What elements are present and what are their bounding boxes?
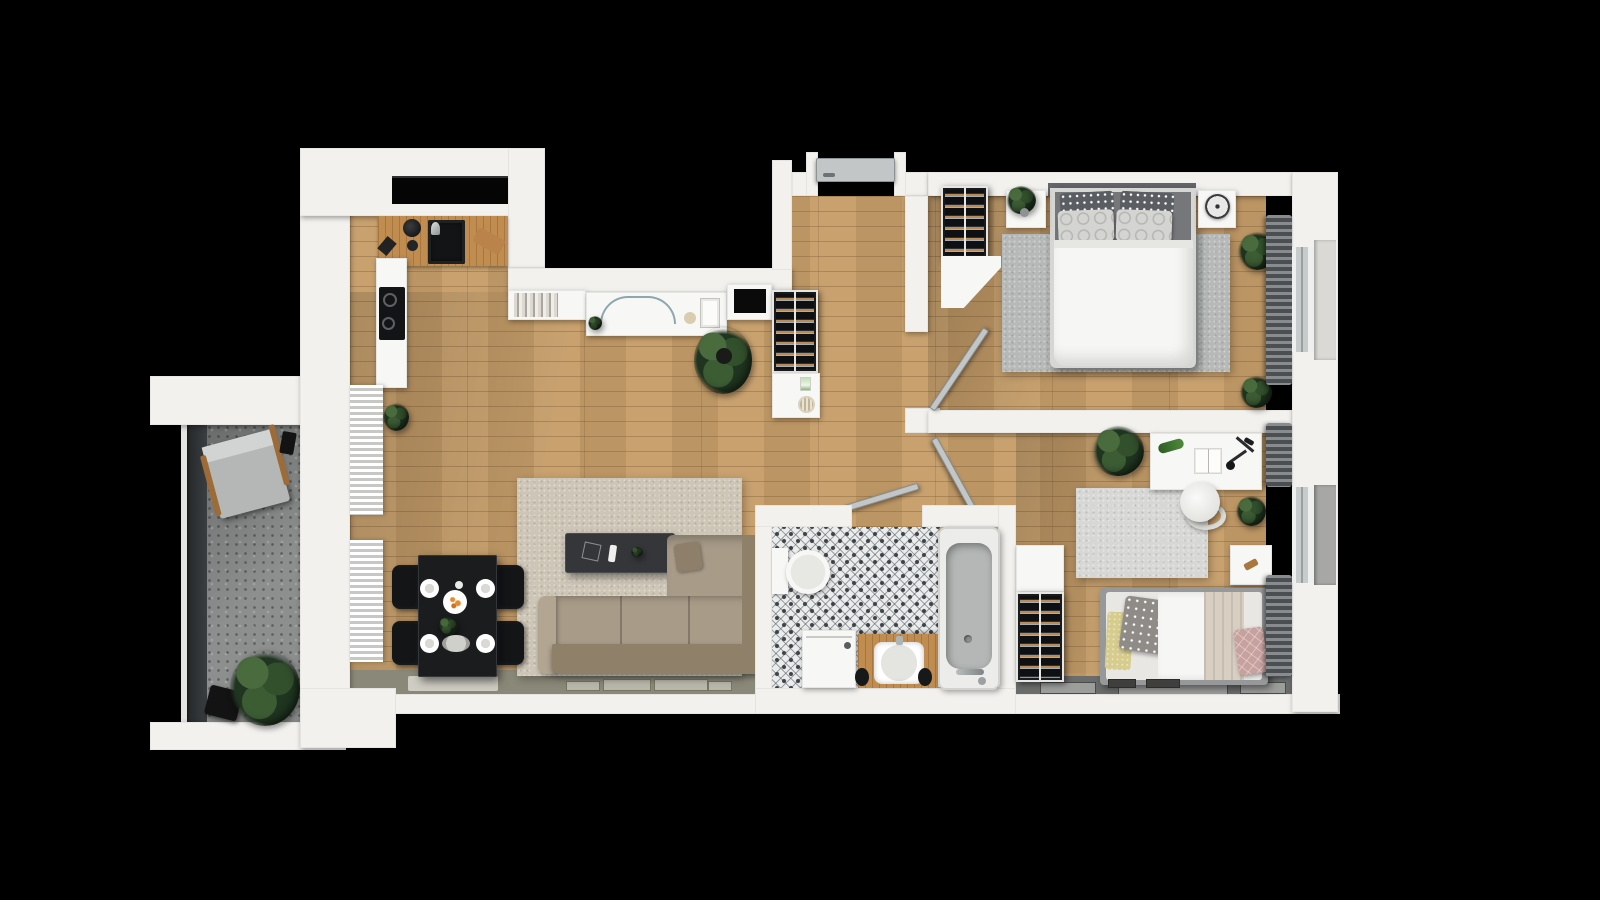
- washer-lid-seam: [806, 636, 852, 638]
- chair-seat: [1180, 482, 1220, 522]
- floor-mat-1: [1108, 679, 1136, 688]
- doormat: [408, 676, 498, 691]
- balcony-slab-top: [150, 376, 322, 425]
- kitchen-faucet: [431, 222, 440, 235]
- plate-3: [420, 634, 439, 653]
- toy-lizard: [1157, 438, 1185, 455]
- table-fan: [1205, 194, 1230, 219]
- toilet-bowl: [786, 550, 830, 594]
- office-plant-large: [1092, 426, 1144, 476]
- double-bed: [1050, 188, 1196, 368]
- bathroom-wall-right: [998, 505, 1016, 690]
- plate-1: [420, 579, 439, 598]
- office-plant-small: [1236, 496, 1266, 526]
- tv-screen: [734, 289, 766, 313]
- living-radiator-lower: [350, 540, 383, 662]
- balcony-railing-frame: [181, 420, 187, 726]
- left-wall: [300, 148, 350, 748]
- bookshelf: [508, 290, 586, 320]
- coffee-cup: [407, 240, 418, 251]
- vanity-faucet: [896, 636, 903, 645]
- food-plate: [443, 590, 467, 614]
- desk-lamp: [1228, 439, 1254, 473]
- burner-1: [383, 293, 397, 307]
- pillow-ring-2: [1115, 209, 1172, 243]
- entrance-door-post-right: [894, 152, 906, 196]
- bathroom-wall-top-left: [755, 505, 852, 527]
- cooktop: [379, 287, 405, 340]
- plate-4: [476, 634, 495, 653]
- serving-platter: [442, 635, 470, 652]
- vanity-stool-1: [855, 668, 869, 686]
- vanity-sink: [874, 642, 924, 684]
- office-closet-rack: [1016, 592, 1064, 682]
- pillow-pink: [1233, 626, 1269, 676]
- cabinet-poster: [800, 377, 811, 391]
- bathroom-wall-bottom: [755, 688, 1016, 714]
- pillow-ring-1: [1057, 209, 1114, 243]
- living-plant-pot: [716, 348, 732, 364]
- dining-chair-4: [494, 621, 524, 665]
- bathtub-handle: [978, 677, 986, 685]
- salt-ball: [455, 581, 463, 589]
- floorplan-canvas: [0, 0, 1600, 900]
- kitchen-window: [392, 176, 508, 204]
- nightstand-cup: [1020, 208, 1029, 217]
- sofa-seats: [554, 596, 762, 648]
- dining-chair-3: [494, 565, 524, 609]
- sofa-backrest: [552, 644, 762, 674]
- bathroom-wall-left: [755, 505, 772, 690]
- sideboard-book: [700, 298, 720, 328]
- bedroom-window-glass: [1292, 247, 1314, 352]
- bedroom-left-wall: [905, 196, 928, 332]
- balcony-plant: [230, 650, 300, 726]
- cabinet-basket: [798, 396, 815, 413]
- sideboard-disc: [684, 312, 696, 324]
- radiator-plant: [383, 403, 409, 431]
- hall-left-wall: [772, 160, 792, 270]
- floor-mat-2: [1146, 679, 1180, 688]
- sideboard: [586, 292, 727, 336]
- single-bed: [1100, 588, 1268, 685]
- sofa: [538, 535, 762, 674]
- corner-block-sw: [300, 688, 396, 748]
- office-radiator-upper: [1266, 423, 1292, 487]
- office-window-glass: [1292, 487, 1314, 583]
- washer-knob: [844, 642, 851, 649]
- entrance-door-handle: [823, 173, 835, 177]
- coffee-grinder: [403, 219, 421, 237]
- hall-wine-rack: [772, 290, 818, 373]
- exterior-notch: [545, 130, 772, 268]
- kitchen-right-column: [508, 148, 545, 268]
- bedroom-radiator: [1266, 215, 1292, 385]
- table-flowers: [438, 617, 458, 635]
- bathtub-drain: [964, 635, 972, 643]
- bathtub-faucet: [956, 669, 984, 675]
- open-book: [1194, 448, 1222, 474]
- entrance-door: [816, 158, 895, 182]
- bedroom-closet-rack: [941, 186, 988, 259]
- washing-machine: [802, 630, 856, 688]
- bathtub: [938, 527, 1000, 690]
- sofa-chaise-pillow: [673, 541, 703, 572]
- bathtub-inner: [946, 543, 992, 669]
- office-window-sill: [1314, 485, 1336, 585]
- plate-2: [476, 579, 495, 598]
- bedroom-window-sill: [1314, 240, 1336, 360]
- glass-arc-sculpture: [600, 296, 676, 324]
- kitchen-sink: [428, 220, 465, 264]
- bed-duvet: [1054, 240, 1193, 366]
- vanity-stool-2: [918, 668, 932, 686]
- dining-table: [418, 555, 497, 677]
- tv-niche: [727, 284, 772, 320]
- sideboard-plant: [588, 316, 602, 330]
- books: [514, 293, 558, 317]
- living-radiator-upper: [350, 385, 383, 515]
- burner-2: [382, 317, 395, 330]
- office-radiator-lower: [1266, 575, 1292, 677]
- office-chair: [1176, 480, 1226, 532]
- office-closet-cabinet: [1016, 545, 1064, 592]
- hall-cabinet: [772, 373, 820, 418]
- nightstand-item: [1243, 558, 1259, 571]
